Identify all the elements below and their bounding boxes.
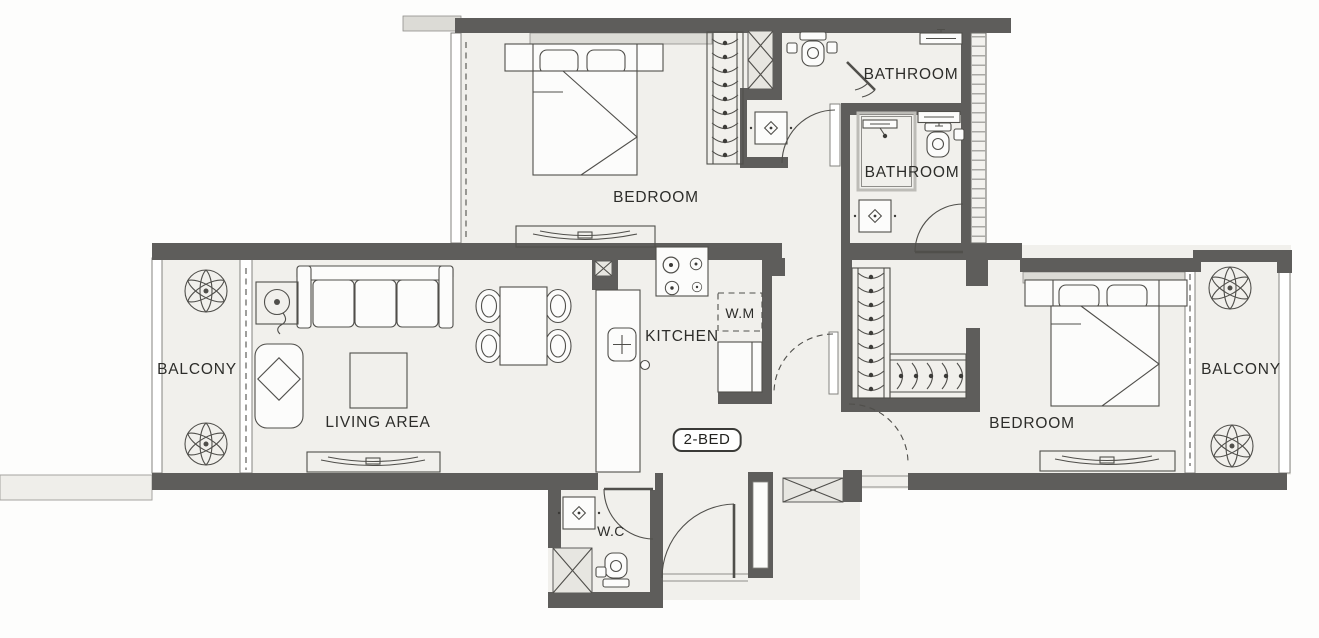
room-label-washer: W.M <box>725 305 754 321</box>
room-label-bedroom-top: BEDROOM <box>613 189 699 207</box>
kitchen-sink-icon <box>608 328 636 361</box>
room-label-bedroom-right: BEDROOM <box>989 415 1075 433</box>
room-label-bathroom-lower: BATHROOM <box>865 164 960 182</box>
room-label-wc: W.C <box>597 523 625 539</box>
vanity-sink-icon <box>750 112 792 144</box>
wc-sink-icon <box>558 497 600 529</box>
armchair-icon <box>255 344 303 428</box>
sink-icon <box>854 200 896 232</box>
stove-icon <box>656 247 708 296</box>
sofa-icon <box>297 266 453 328</box>
fridge-icon <box>718 342 762 392</box>
floor-plan-drawing <box>0 0 1319 638</box>
bedroom-door-threshold <box>862 474 908 489</box>
room-label-bathroom-upper: BATHROOM <box>864 66 959 84</box>
unit-type-badge: 2-BED <box>673 428 742 452</box>
room-label-living-area: LIVING AREA <box>325 414 430 432</box>
room-label-balcony-right: BALCONY <box>1201 361 1281 379</box>
room-label-kitchen: KITCHEN <box>645 328 719 346</box>
room-label-balcony-left: BALCONY <box>157 361 237 379</box>
toilet-icon <box>800 32 826 66</box>
toilet-icon <box>925 123 951 157</box>
floor-plan: BEDROOM BATHROOM BATHROOM BALCONY LIVING… <box>0 0 1319 638</box>
